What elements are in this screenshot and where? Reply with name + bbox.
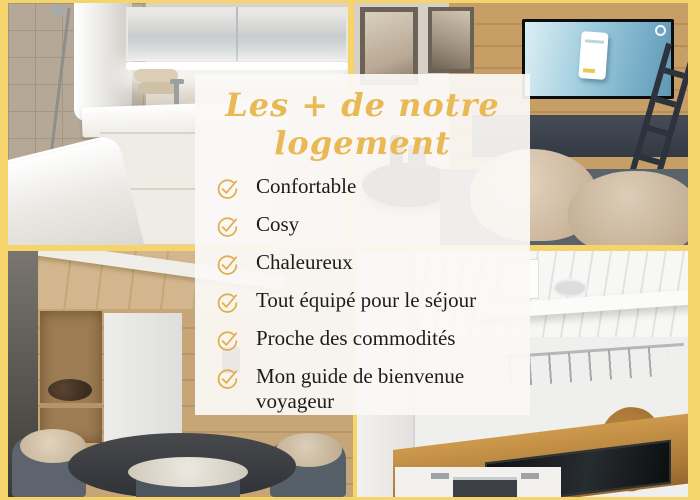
hanging-utensils — [508, 345, 670, 386]
oven — [453, 477, 517, 497]
log-niche — [40, 311, 102, 443]
feature-item: Mon guide de bienvenue voyageur — [215, 364, 510, 415]
photo-collage-frame: Les + de notre logement Confortable Cosy — [0, 0, 700, 500]
features-panel: Les + de notre logement Confortable Cosy — [195, 74, 530, 415]
tv-logo-badge — [655, 25, 666, 36]
check-circle-icon — [215, 365, 241, 391]
feature-item: Chaleureux — [215, 250, 510, 277]
shower-curtain — [74, 3, 132, 121]
panel-title-line2: logement — [215, 124, 510, 162]
fire-logs — [48, 379, 92, 401]
feature-item: Tout équipé pour le séjour — [215, 288, 510, 315]
mirror-seam — [236, 7, 238, 61]
feature-label: Cosy — [256, 212, 299, 238]
shower-head — [52, 5, 66, 15]
feature-item: Proche des commodités — [215, 326, 510, 353]
plates — [553, 279, 587, 297]
check-circle-icon — [215, 289, 241, 315]
check-circle-icon — [215, 175, 241, 201]
niche-shelf — [40, 403, 102, 408]
framed-picture — [428, 7, 474, 73]
panel-title-line1: Les + de notre — [215, 86, 510, 124]
feature-label: Proche des commodités — [256, 326, 455, 352]
check-circle-icon — [215, 251, 241, 277]
check-circle-icon — [215, 213, 241, 239]
feature-label: Chaleureux — [256, 250, 353, 276]
feature-label: Tout équipé pour le séjour — [256, 288, 476, 314]
fur-throw — [128, 457, 248, 487]
wall-tv — [522, 19, 674, 99]
feature-item: Cosy — [215, 212, 510, 239]
panel-title: Les + de notre logement — [215, 86, 510, 163]
feature-label: Mon guide de bienvenue voyageur — [256, 364, 510, 415]
phone-on-screen — [578, 31, 608, 80]
check-circle-icon — [215, 327, 241, 353]
feature-item: Confortable — [215, 174, 510, 201]
feature-label: Confortable — [256, 174, 356, 200]
feature-list: Confortable Cosy Chaleureux Tout équipé … — [215, 174, 510, 415]
faucet — [174, 79, 179, 107]
